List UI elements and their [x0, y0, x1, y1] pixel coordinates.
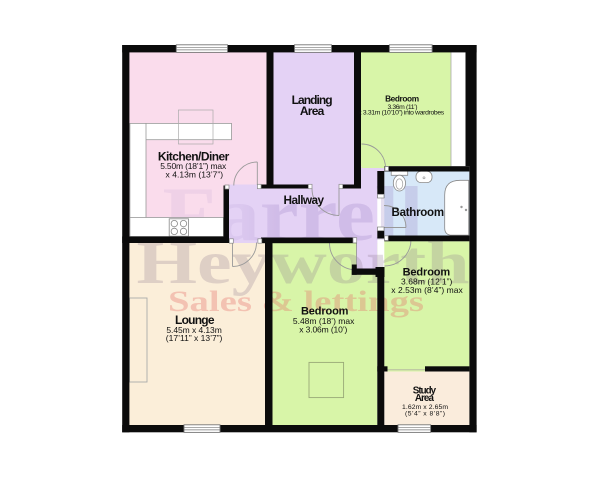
svg-text:x 2.53m (8’4”) max: x 2.53m (8’4”) max	[391, 285, 463, 295]
svg-text:(17’11” x 13’7”): (17’11” x 13’7”)	[166, 333, 223, 343]
svg-text:x 4.13m (13’7”): x 4.13m (13’7”)	[166, 169, 224, 179]
svg-text:Bedroom: Bedroom	[385, 94, 419, 104]
svg-text:x 3.31m (10’10”) into wardrobe: x 3.31m (10’10”) into wardrobes	[358, 110, 445, 117]
svg-text:Area: Area	[415, 393, 435, 404]
svg-text:Area: Area	[300, 104, 325, 118]
svg-text:Hallway: Hallway	[284, 193, 325, 207]
svg-text:Bathroom: Bathroom	[392, 207, 445, 219]
svg-text:(5’4” x 8’8”): (5’4” x 8’8”)	[405, 410, 445, 417]
svg-text:x 3.06m (10’): x 3.06m (10’)	[299, 324, 347, 334]
